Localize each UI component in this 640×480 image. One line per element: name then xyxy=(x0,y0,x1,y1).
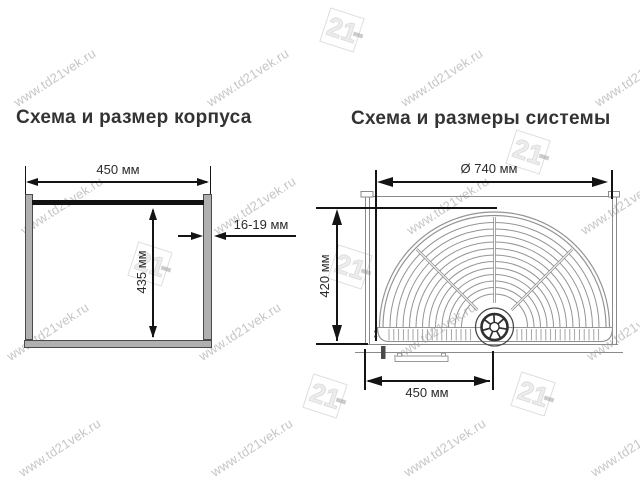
offset-dimension-label: 450 мм xyxy=(377,385,477,400)
watermark-text: www.td21vek.ru xyxy=(0,291,105,374)
left-diagram-title: Схема и размер корпуса xyxy=(16,107,252,129)
cabinet-bottom-panel xyxy=(24,340,212,348)
dimension-line-offset xyxy=(368,380,490,382)
dimension-line-width xyxy=(28,181,207,183)
brand-logo-watermark: 21 xyxy=(506,367,560,421)
product-schematic-image: www.td21vek.ruwww.td21vek.ruwww.td21vek.… xyxy=(0,0,640,480)
extension-line-top xyxy=(316,207,497,209)
extension-line-bottom xyxy=(316,343,368,345)
arrowhead-right-icon xyxy=(592,177,608,187)
cabinet-right-panel xyxy=(203,194,212,340)
brand-logo-watermark: 21 xyxy=(315,3,369,57)
depth-dimension-label: 420 мм xyxy=(317,246,333,306)
height-dimension-label: 435 мм xyxy=(134,242,150,302)
diameter-dimension-label: Ø 740 мм xyxy=(429,161,549,176)
watermark-text: www.td21vek.ru xyxy=(5,165,119,248)
arrowhead-down-icon xyxy=(332,325,342,341)
arrowhead-up-icon xyxy=(149,208,157,220)
thickness-dimension-label: 16-19 мм xyxy=(222,217,300,232)
brand-logo-watermark: 21 xyxy=(298,369,352,423)
dimension-line-diameter xyxy=(380,181,595,183)
arrowhead-left-icon xyxy=(377,177,393,187)
cabinet-left-panel xyxy=(25,194,33,340)
extension-line-hub xyxy=(492,351,494,390)
arrowhead-down-icon xyxy=(149,326,157,338)
brand-logo-watermark: 21 xyxy=(123,237,177,291)
width-dimension-label: 450 мм xyxy=(28,162,208,177)
watermark-text: www.td21vek.ru xyxy=(3,407,117,480)
watermark-text: www.td21vek.ru xyxy=(195,407,309,480)
watermark-text: www.td21vek.ru xyxy=(579,37,640,120)
watermark-text: www.td21vek.ru xyxy=(183,291,297,374)
arrowhead-left-icon xyxy=(26,178,38,186)
thickness-leader-right xyxy=(224,235,296,237)
mounting-rail xyxy=(32,200,204,205)
dimension-line-depth xyxy=(336,212,338,341)
right-diagram-title: Схема и размеры системы xyxy=(351,108,610,130)
arrowhead-up-icon xyxy=(332,209,342,225)
arrowhead-right-icon xyxy=(191,232,203,240)
tray-pivot-bar xyxy=(375,170,377,341)
watermark-text: www.td21vek.ru xyxy=(388,407,502,480)
extension-line-right xyxy=(210,166,211,194)
extension-line-right xyxy=(611,170,613,199)
watermark-text: www.td21vek.ru xyxy=(385,37,499,120)
system-top-view-drawing xyxy=(355,190,625,370)
watermark-text: www.td21vek.ru xyxy=(575,407,640,480)
dimension-line-height xyxy=(152,210,154,337)
arrowhead-right-icon xyxy=(197,178,209,186)
